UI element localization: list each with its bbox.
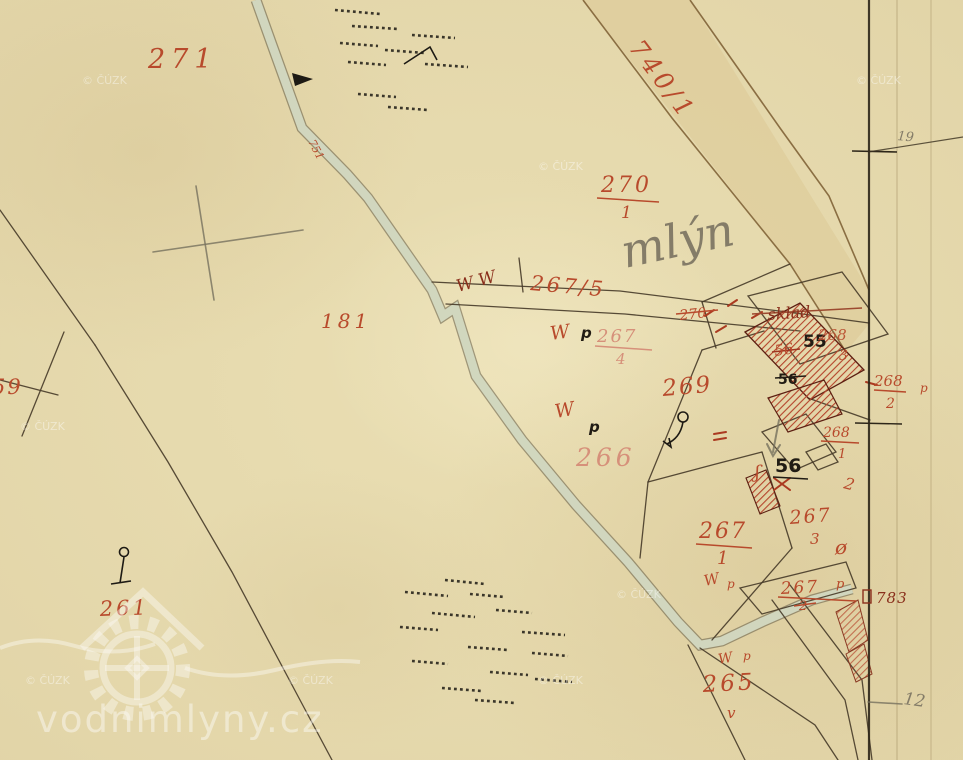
parcel-label-269: 269 [660,372,713,402]
meadow-symbol-w: W [717,649,736,668]
parcel-label-267-1-num: 267 [698,519,747,544]
parcel-label-266: 266 [575,443,636,472]
margin-tick-middle [855,423,902,424]
copyright-watermark: © ČÚZK [20,420,66,433]
stream-parcel-label: 751 [305,137,326,162]
water-wave-icon [185,661,360,676]
parcel-label-270-struck: 270 [678,305,707,324]
parcel-label-267-2-den: 2 [798,599,807,614]
parcel-label-270-num: 270 [600,173,652,198]
sheet-number-bottom: 12 [902,689,926,712]
copyright-watermark: © ČÚZK [288,674,334,687]
meadow-symbol-w: W [549,320,573,345]
house-number-56-struck: 56 [778,372,797,388]
stamp-number-783: 783 [876,589,908,607]
house-number-56-red-struck: 56 [773,339,795,360]
copyright-watermark: © ČÚZK [616,588,662,601]
parcel-label-267-3-num: 267 [788,504,833,529]
parcel-label-268-1-den: 1 [838,447,846,462]
copyright-watermark: © ČÚZK [82,74,128,87]
water-wave-icon [0,640,155,651]
house-number-56: 56 [775,455,801,477]
parcel-label-268-2-den: 2 [885,396,895,412]
pencil-note-mlyn: mlýn [616,202,739,279]
pasture-symbol-p: p [920,381,928,395]
parcel-label-267-2-num: 267 [779,577,819,599]
checkmark-line [404,47,437,64]
checkmark-v: v [727,704,736,722]
parcel-labels: 271 740/1 270 1 mlýn 267/5 W W W p 267 4… [0,34,928,722]
pasture-symbol-p: p [836,577,845,592]
meadow-symbol-w: W [702,569,722,590]
parcel-label-268-2-num: 268 [873,372,903,390]
parcel-label-267-1-den: 1 [717,548,728,569]
copyright-watermark: © ČÚZK [538,160,584,173]
flourish-mark: ø [834,535,848,559]
site-watermark-text: vodnimlyny.cz [36,698,324,741]
plant-symbol-2 [111,548,131,585]
parcel-label-268-1-num: 268 [822,425,850,441]
meadow-symbol-w: W [454,273,478,297]
parcel-label-268-3-den: 3 [839,348,848,364]
black-arrowhead-mark [292,73,313,86]
map-margin [852,0,963,760]
pasture-symbol-p: p [727,577,735,591]
pasture-symbol-p: p [588,418,600,436]
margin-diagonal-line [868,137,963,152]
parcel-label-59-clipped: 59 [0,375,23,399]
parcel-label-267-4-num: 267 [596,326,637,347]
parcel-label-268-3-num: 268 [817,326,847,344]
meadow-symbol-w: W [476,267,500,291]
parcel-label-267-4-den: 4 [615,350,626,368]
parcel-label-271: 271 [147,44,218,75]
parcel-label-265: 265 [701,669,756,698]
parcel-label-267-5: 267/5 [529,271,607,302]
meadow-symbol-w: W [553,398,578,423]
parcel-label-2-rotated: 2 [841,473,857,494]
sheet-number-top: 19 [897,129,915,145]
vodnimlyny-logo: vodnimlyny.cz [0,592,360,741]
copyright-watermark: © ČÚZK [25,674,71,687]
parcel-label-270-den: 1 [621,203,632,223]
cadastral-map: 271 740/1 270 1 mlýn 267/5 W W W p 267 4… [0,0,963,760]
note-sklad-struck: sklad [767,302,811,324]
vegetation-marks [111,10,688,703]
plant-symbol [663,412,688,447]
parcel-label-267-3-den: 3 [810,530,820,548]
pencil-cross-2 [153,230,303,252]
parcel-label-181: 181 [321,309,371,333]
pasture-symbol-p: p [743,649,751,663]
copyright-watermark: © ČÚZK [856,74,902,87]
copyright-watermark: © ČÚZK [538,674,584,687]
pasture-symbol-p: p [580,324,592,342]
